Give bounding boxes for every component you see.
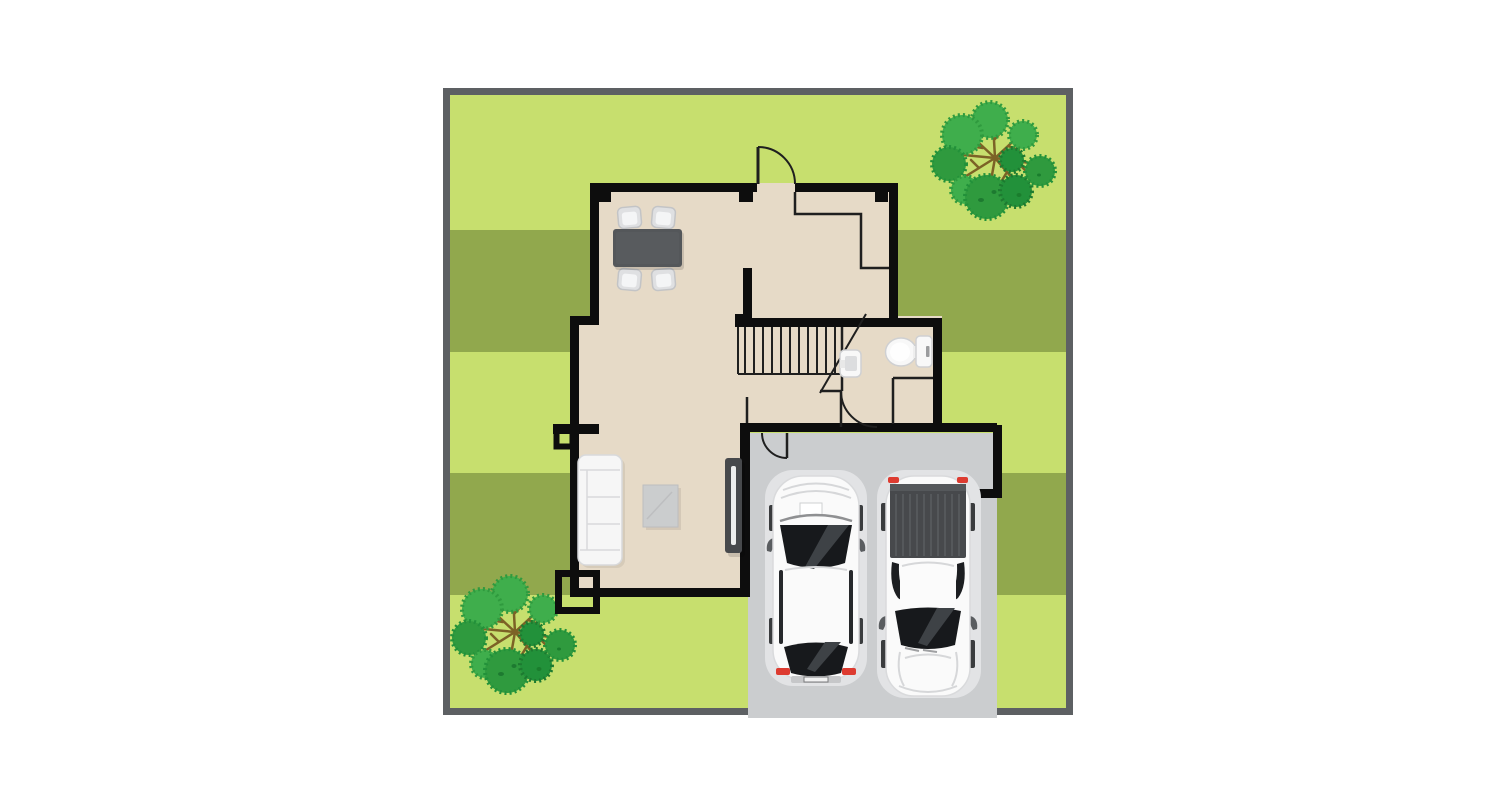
sedan-taillight-right	[842, 668, 856, 675]
pickup-taillight-right	[957, 477, 968, 483]
car-pickup	[877, 470, 981, 698]
sofa-body	[578, 455, 622, 565]
wall-south-garage-top	[740, 423, 997, 432]
wall-left-upper	[590, 183, 599, 325]
car-sedan	[765, 470, 867, 686]
wall-bottom	[570, 588, 748, 597]
toilet-tank	[916, 336, 932, 367]
illustration-stage	[0, 0, 1500, 785]
pickup-bed	[890, 484, 966, 558]
wall-top-right	[795, 183, 898, 192]
floor-plan-svg	[443, 88, 1073, 720]
sedan-taillight-left	[776, 668, 790, 675]
property-lot	[443, 88, 1073, 715]
tv-screen	[731, 466, 736, 545]
jamb-corner-left	[598, 192, 611, 202]
pickup-taillight-left	[888, 477, 899, 483]
jamb-front-door	[739, 192, 753, 202]
ottoman	[643, 485, 681, 530]
wall-top-left	[590, 183, 757, 192]
wall-garage-right	[993, 425, 1002, 498]
tv-console	[725, 458, 745, 557]
jamb-corner-right	[875, 192, 888, 202]
sofa	[578, 455, 625, 568]
wall-garage-right-stub	[978, 489, 1002, 498]
wall-right-upper	[889, 183, 898, 325]
wall-stairs-bath-top	[735, 318, 942, 327]
wall-stair-stub	[743, 268, 752, 322]
ottoman-body	[643, 485, 678, 527]
wall-bath-right	[933, 318, 942, 432]
